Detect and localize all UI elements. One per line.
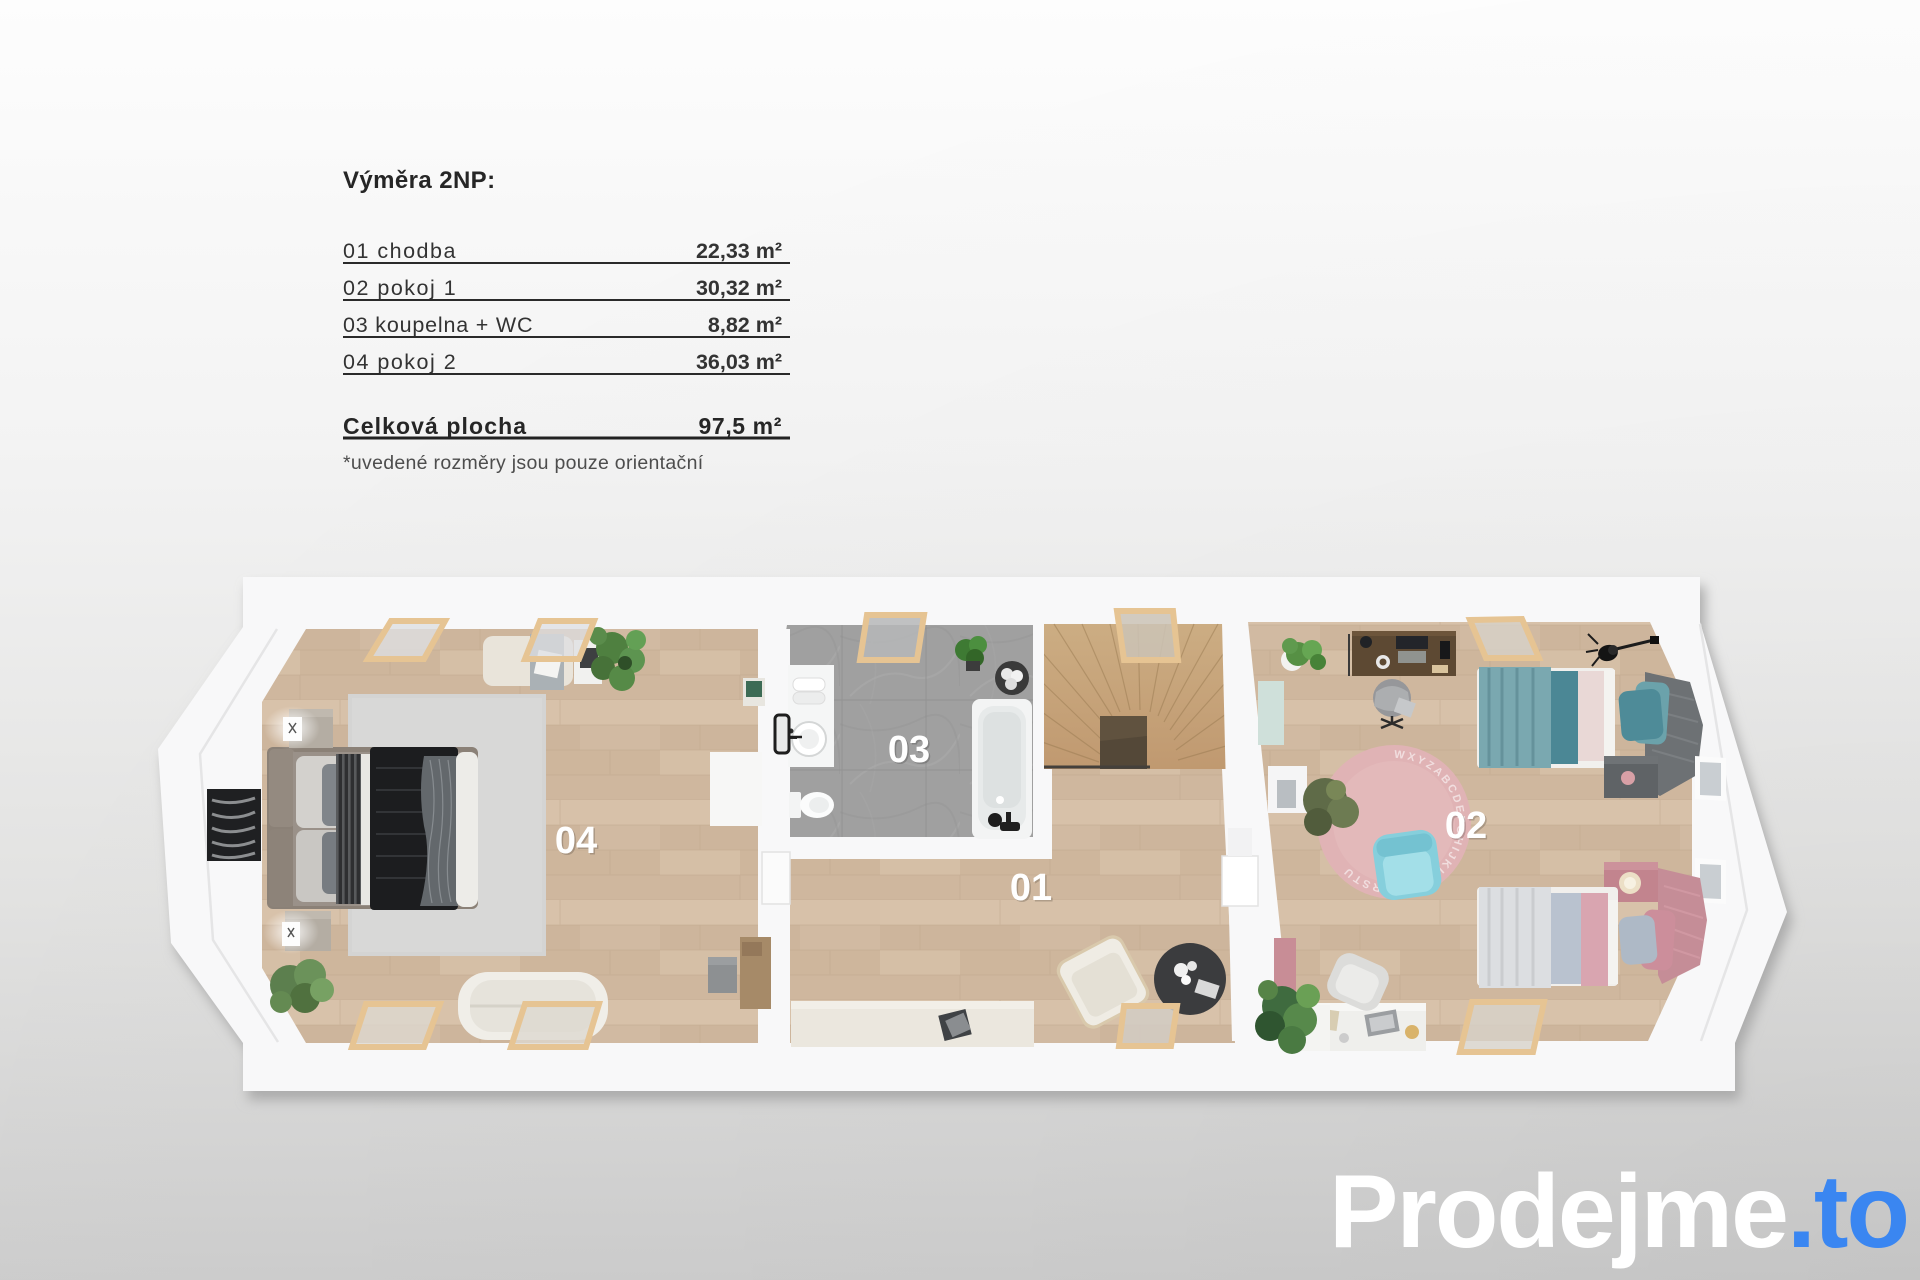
svg-text:Celková plocha: Celková plocha: [343, 413, 527, 439]
svg-text:03: 03: [888, 729, 930, 771]
svg-text:36,03 m²: 36,03 m²: [696, 350, 782, 374]
svg-text:02: 02: [1445, 805, 1487, 847]
svg-text:Prodejme.to: Prodejme.to: [1329, 1154, 1908, 1270]
svg-text:04 pokoj 2: 04 pokoj 2: [343, 350, 457, 374]
svg-text:8,82 m²: 8,82 m²: [708, 313, 782, 337]
svg-text:*uvedené rozměry jsou pouze or: *uvedené rozměry jsou pouze orientační: [343, 452, 704, 474]
svg-text:01 chodba: 01 chodba: [343, 239, 457, 263]
svg-text:01: 01: [1010, 867, 1052, 909]
svg-text:30,32 m²: 30,32 m²: [696, 276, 782, 300]
svg-text:03 koupelna + WC: 03 koupelna + WC: [343, 313, 533, 337]
svg-text:97,5 m²: 97,5 m²: [699, 413, 782, 439]
svg-text:Výměra 2NP:: Výměra 2NP:: [343, 167, 495, 194]
svg-text:04: 04: [555, 820, 597, 862]
svg-text:02 pokoj 1: 02 pokoj 1: [343, 276, 457, 300]
svg-text:22,33 m²: 22,33 m²: [696, 239, 782, 263]
